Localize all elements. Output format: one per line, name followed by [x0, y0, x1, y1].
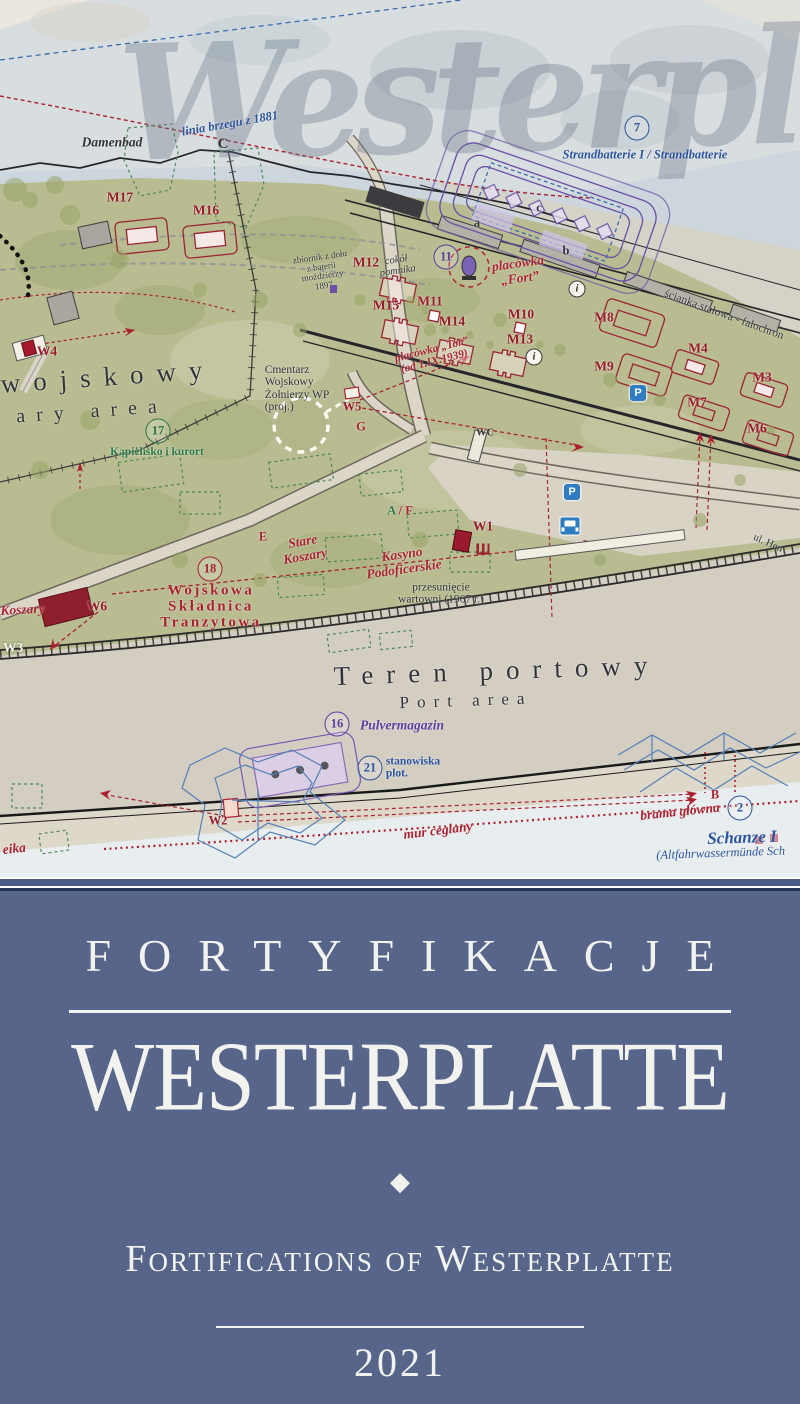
diamond-ornament: ◆	[0, 1167, 800, 1197]
marker-7-badge: 7	[625, 116, 650, 141]
subtitle-english: Fortifications of Westerplatte	[0, 1237, 800, 1281]
w6-label: W6	[87, 600, 107, 615]
wc-label: WC	[476, 427, 494, 438]
m4-label: M4	[688, 342, 708, 357]
m10-label: M10	[508, 308, 534, 323]
m9-label: M9	[594, 360, 614, 375]
info-icon: i	[526, 349, 543, 366]
marker-2-badge: 2	[728, 796, 753, 821]
guardhouse-moved-note: przesunięciewartowni (1967 r.)	[398, 582, 484, 607]
point-e-label: E	[259, 530, 267, 544]
m8-label: M8	[594, 311, 614, 326]
mortar-tank-note: zbiornik z dołuz baterii moździerzy1897	[292, 249, 351, 295]
w2-label: W2	[209, 814, 228, 828]
map-area: Westerplatte linia brzegu z 1881 Damenba…	[0, 0, 800, 877]
marker-17-badge: 17	[146, 419, 171, 444]
point-a-label: a	[474, 216, 480, 230]
m11-label: M11	[417, 295, 443, 310]
damenbad-label: Damenbad	[82, 136, 143, 151]
m15-label: M15	[373, 299, 399, 314]
marker-16-badge: 16	[325, 712, 350, 737]
m16-label: M16	[193, 204, 219, 219]
panel-separator	[0, 877, 800, 891]
aa-positions-label: stanowiskaplot.	[386, 756, 440, 781]
parking-icon: P	[564, 484, 580, 500]
w1-label: W1	[473, 520, 493, 535]
marker-21-badge: 21	[358, 756, 383, 781]
m13-label: M13	[507, 333, 533, 348]
point-c-label: C	[218, 136, 229, 152]
parking-icon: P	[630, 385, 646, 401]
title-panel: FORTYFIKACJE WESTERPLATTE ◆ Fortificatio…	[0, 877, 800, 1404]
strandbatterie-label: Strandbatterie I / Strandbatterie	[563, 148, 728, 162]
m6-label: M6	[747, 422, 767, 437]
point-g-label: G	[356, 420, 366, 434]
point-c2-label: c	[536, 201, 542, 215]
year-label: 2021	[0, 1339, 800, 1386]
pulvermagazin-label: Pulvermagazin	[360, 719, 444, 734]
series-title: FORTYFIKACJE	[0, 929, 800, 982]
book-cover: Westerplatte linia brzegu z 1881 Damenba…	[0, 0, 800, 1404]
w5-label: W5	[343, 400, 362, 414]
m7-label: M7	[687, 396, 707, 411]
monument-iii-icon	[477, 544, 490, 555]
m3-label: M3	[752, 371, 772, 386]
year-rule	[216, 1326, 584, 1328]
point-b-label: b	[563, 244, 570, 258]
point-af-label: A / F	[387, 504, 413, 518]
cemetery-label: CmentarzWojskowy Żołnierzy WP(proj.)	[265, 364, 330, 414]
marker-18-badge: 18	[198, 557, 223, 582]
transit-depot-label: WojskowaSkładnica Tranzytowa	[160, 583, 261, 632]
m12-label: M12	[353, 256, 379, 271]
m14-label: M14	[439, 315, 465, 330]
bus-stop-icon	[561, 518, 580, 535]
map-drawing	[0, 0, 800, 877]
marker-11-badge: 11	[434, 245, 459, 270]
barracks-label: Koszary	[0, 602, 45, 619]
title-rule	[69, 1010, 731, 1013]
w4-label: W4	[37, 345, 57, 360]
info-icon: i	[569, 281, 586, 298]
m17-label: M17	[107, 191, 133, 206]
w3-label: W3	[3, 641, 23, 656]
eika-partial-label: eika	[2, 841, 27, 858]
main-title: WESTERPLATTE	[0, 1029, 800, 1128]
bathing-resort-label: Kąpielisko i kurort	[110, 446, 204, 458]
